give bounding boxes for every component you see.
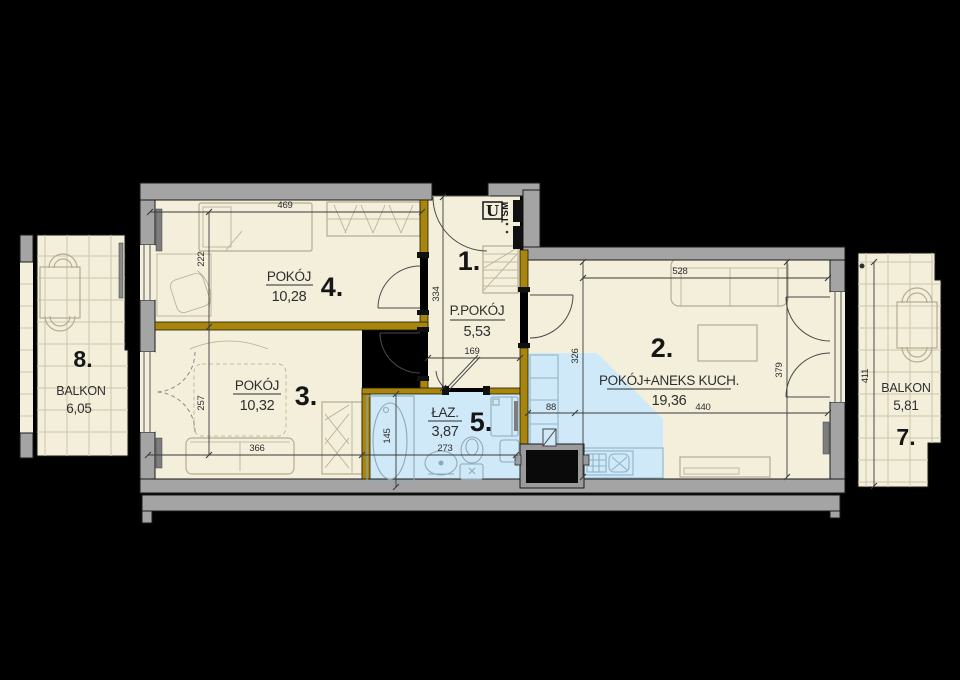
- neighbor-balcony-edge: [20, 262, 33, 433]
- dim-room4-height: 222: [196, 251, 207, 266]
- radiator-room4: [156, 209, 162, 251]
- wall-top-right: [523, 247, 845, 260]
- room4-number: 4.: [321, 272, 344, 302]
- dim-living-height-right: 379: [774, 362, 785, 377]
- partition-room4-room3: [155, 322, 428, 330]
- dim-room3-height: 257: [196, 395, 207, 410]
- balcony-8: [30, 230, 130, 460]
- room3-name: POKÓJ: [235, 378, 279, 393]
- radiator-room3: [156, 438, 162, 468]
- living-balcony-door-opening: [830, 292, 845, 402]
- room4-name: POKÓJ: [267, 269, 311, 284]
- gas-meter: [543, 429, 556, 446]
- door-handle-dot-2: [506, 231, 509, 234]
- balcony8-glazing-line: [119, 243, 123, 298]
- balcony7-area: 5,81: [893, 398, 918, 413]
- partition-hall-east-a: [520, 250, 528, 292]
- room3-balcony-door-opening: [140, 352, 155, 432]
- floor-plan-page: 469 222 334 169 257 366 145 273 88 326 4…: [0, 0, 960, 680]
- dim-living-height-left: 326: [570, 348, 581, 363]
- partition-bath-north-a: [362, 388, 448, 394]
- wall-top-left: [140, 183, 432, 200]
- hall-number: 1.: [458, 246, 481, 276]
- apartment-floor-plan: 469 222 334 169 257 366 145 273 88 326 4…: [0, 0, 960, 680]
- balcony8-area: 6,05: [66, 401, 91, 416]
- room4-area: 10,28: [272, 289, 307, 305]
- balcony8-name: BALKON: [56, 384, 106, 398]
- entrance-door-leaf-bottom: [513, 226, 522, 249]
- balcony8-number: 8.: [73, 346, 92, 372]
- living-number: 2.: [651, 333, 674, 363]
- stove: [515, 444, 589, 488]
- wall-bottom-outer: [142, 495, 840, 511]
- wall-bottom-step-right: [830, 511, 840, 518]
- living-area: 19,36: [652, 393, 687, 409]
- balcony7-number: 7.: [896, 424, 915, 450]
- technical-annotations: U TSM: [483, 201, 511, 222]
- bath-area: 3,87: [431, 424, 458, 440]
- shaft-label: TSM: [500, 201, 511, 222]
- dim-balcony7-height: 411: [860, 369, 871, 384]
- dim-living-top-width: 528: [672, 266, 687, 277]
- partition-bath-west: [362, 392, 370, 479]
- neighbor-balcony-floor: [20, 262, 33, 433]
- partition-hall-east-b: [520, 348, 528, 446]
- hall-name: P.POKÓJ: [450, 303, 505, 318]
- wall-right-upper: [830, 260, 845, 292]
- dim-bath-height: 145: [382, 428, 393, 443]
- hall-area: 5,53: [463, 324, 490, 340]
- room3-number: 3.: [295, 381, 318, 411]
- radiator-living: [823, 422, 829, 454]
- dim-bath-width: 273: [437, 443, 452, 454]
- dim-room3-width: 366: [249, 443, 264, 454]
- wall-bottom-inner: [140, 479, 845, 493]
- dim-kitchen-offset: 88: [546, 402, 556, 413]
- dim-living-width: 440: [695, 402, 710, 413]
- wall-bottom-step-left: [142, 511, 152, 523]
- wall-left-middle: [140, 300, 155, 352]
- partition-hall-west-a: [420, 200, 428, 258]
- neighbor-wall-stub-top: [20, 235, 33, 262]
- neighbor-wall-stub-bottom: [20, 433, 33, 458]
- dim-hall-height: 334: [431, 286, 442, 301]
- dim-hall-width: 169: [464, 346, 479, 357]
- meter-label: U: [486, 202, 499, 220]
- room4-window-opening: [140, 245, 155, 300]
- entrance-door-leaf-top: [513, 200, 522, 222]
- dim-room4-width: 469: [277, 200, 292, 211]
- living-name: POKÓJ+ANEKS KUCH.: [599, 373, 739, 388]
- balcony7-name: BALKON: [881, 381, 931, 395]
- wall-left-upper: [140, 200, 155, 245]
- bath-number: 5.: [470, 407, 493, 437]
- wall-entrance-side: [523, 190, 540, 250]
- room3-area: 10,32: [240, 398, 275, 414]
- wall-right-lower: [830, 402, 845, 479]
- bath-name: ŁAZ.: [431, 405, 458, 420]
